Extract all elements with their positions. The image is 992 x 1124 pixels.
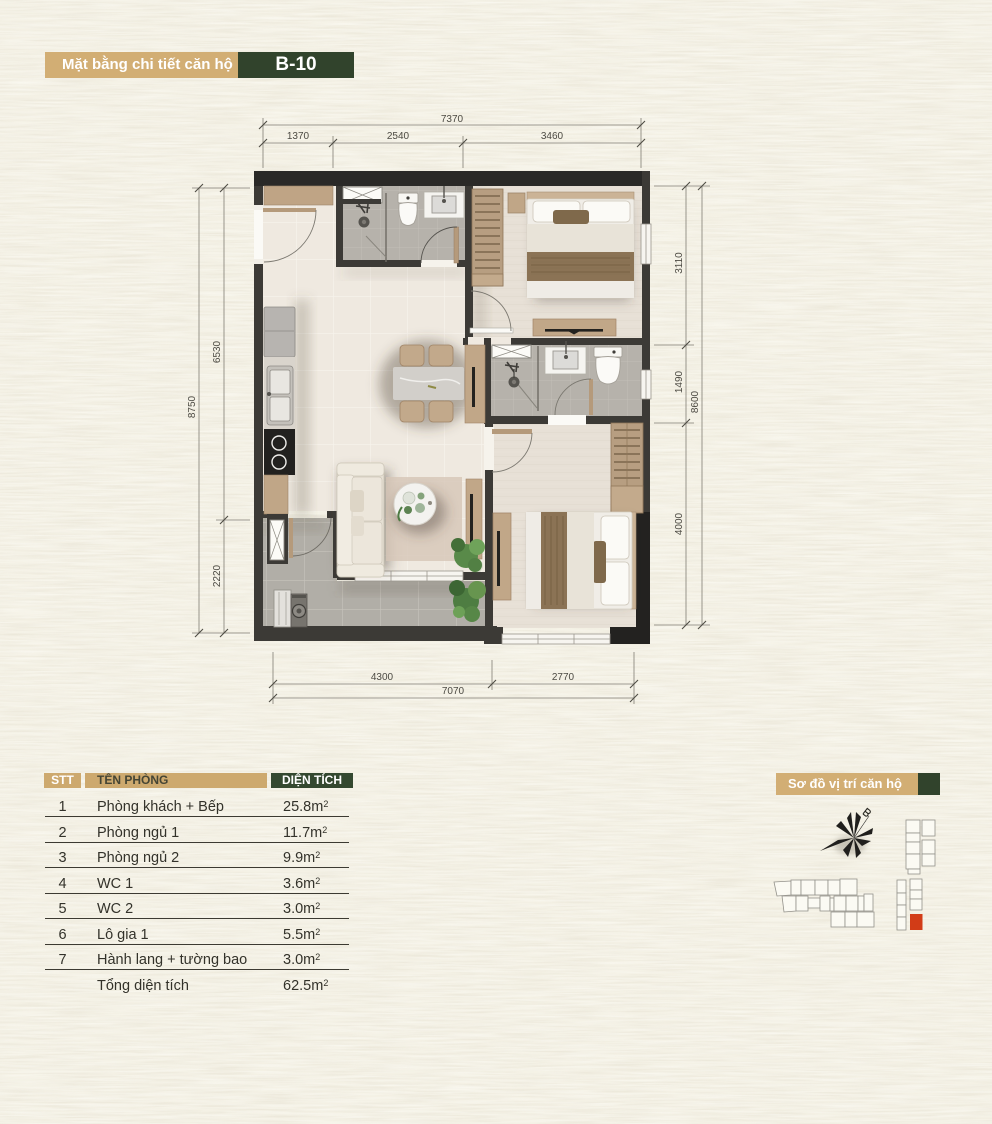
svg-text:1490: 1490 — [674, 370, 685, 393]
svg-text:2770: 2770 — [552, 672, 575, 683]
svg-text:4000: 4000 — [674, 512, 685, 535]
svg-text:2540: 2540 — [387, 131, 410, 142]
svg-text:2220: 2220 — [212, 564, 223, 587]
svg-text:7370: 7370 — [441, 114, 464, 125]
svg-text:8600: 8600 — [690, 390, 701, 413]
svg-text:4300: 4300 — [371, 672, 394, 683]
svg-text:1370: 1370 — [287, 131, 310, 142]
svg-text:3460: 3460 — [541, 131, 564, 142]
svg-text:8750: 8750 — [187, 395, 198, 418]
svg-text:3110: 3110 — [674, 252, 685, 274]
svg-text:6530: 6530 — [212, 340, 223, 363]
svg-text:7070: 7070 — [442, 686, 465, 697]
